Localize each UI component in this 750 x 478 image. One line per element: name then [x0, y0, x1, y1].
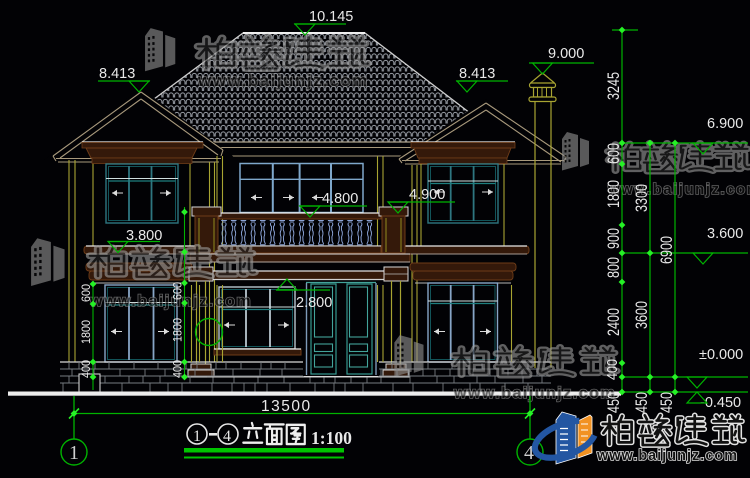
svg-text:www.baijunjz.com: www.baijunjz.com [596, 448, 738, 464]
svg-text:600: 600 [171, 282, 185, 300]
svg-text:www.baijunjz.com: www.baijunjz.com [197, 71, 369, 90]
svg-text:1: 1 [193, 428, 201, 445]
svg-text:8.413: 8.413 [459, 66, 495, 82]
svg-text:±0.000: ±0.000 [699, 347, 743, 363]
svg-text:450: 450 [605, 392, 623, 413]
svg-text:9.000: 9.000 [548, 46, 584, 62]
svg-text:1:100: 1:100 [311, 428, 352, 448]
svg-text:6.900: 6.900 [707, 116, 743, 132]
svg-text:10.145: 10.145 [309, 9, 353, 25]
svg-text:600: 600 [605, 143, 623, 164]
svg-text:400: 400 [604, 359, 621, 380]
svg-text:3300: 3300 [633, 184, 651, 212]
svg-text:4.900: 4.900 [409, 187, 445, 203]
svg-text:400: 400 [171, 360, 185, 378]
svg-text:2400: 2400 [605, 308, 623, 336]
svg-text:450: 450 [658, 392, 676, 413]
svg-text:3600: 3600 [633, 301, 651, 329]
svg-text:900: 900 [605, 228, 623, 249]
svg-text:600: 600 [79, 284, 93, 302]
svg-text:2.800: 2.800 [296, 295, 332, 311]
svg-text:6900: 6900 [658, 236, 676, 264]
svg-text:www.baijunjz.com: www.baijunjz.com [453, 385, 616, 402]
svg-text:1800: 1800 [79, 320, 93, 344]
svg-text:3245: 3245 [605, 72, 623, 100]
svg-text:400: 400 [79, 360, 93, 378]
svg-text:4: 4 [223, 428, 231, 445]
svg-text:3.600: 3.600 [707, 226, 743, 242]
svg-text:450: 450 [633, 392, 651, 413]
svg-text:1800: 1800 [605, 180, 623, 208]
svg-text:www.baijunjz.com: www.baijunjz.com [607, 181, 750, 198]
svg-text:1800: 1800 [171, 318, 185, 342]
svg-text:13500: 13500 [261, 398, 312, 415]
svg-text:800: 800 [605, 257, 623, 278]
svg-text:1: 1 [69, 442, 79, 464]
svg-text:8.413: 8.413 [99, 66, 135, 82]
svg-text:4.800: 4.800 [322, 191, 358, 207]
